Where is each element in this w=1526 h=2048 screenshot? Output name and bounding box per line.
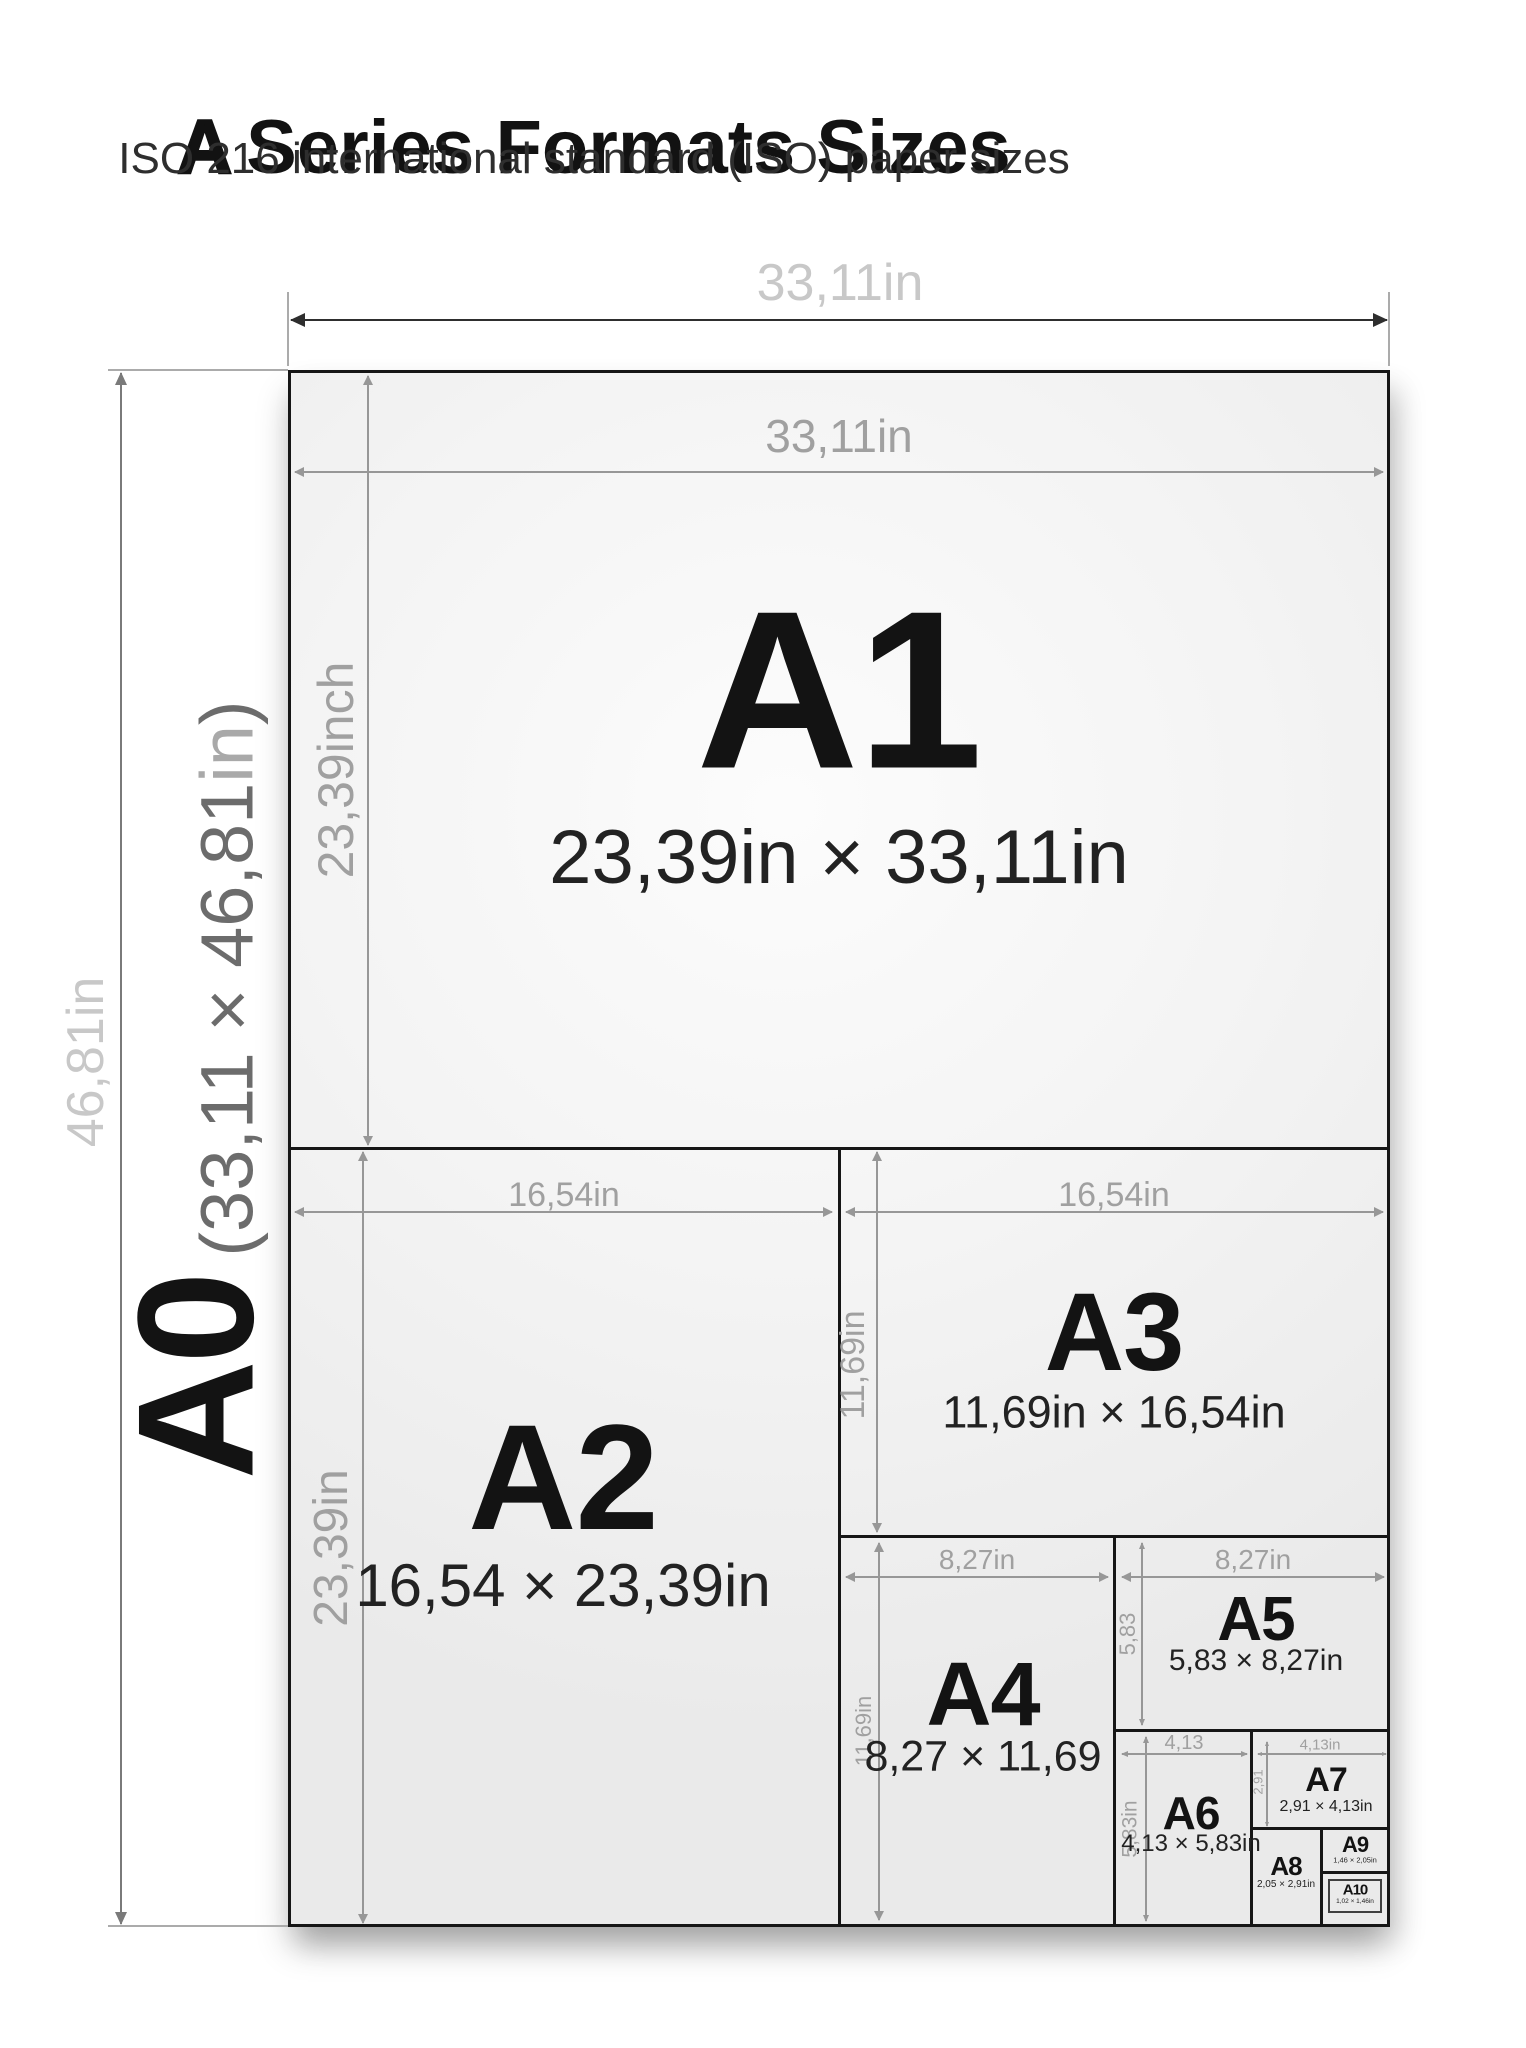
extension-line-left-bottom — [108, 1925, 288, 1927]
a5-height-label: 5,83 — [1117, 1613, 1139, 1656]
a2-size: 16,54 × 23,39in — [355, 1556, 770, 1616]
a0-title: A0 — [114, 1275, 279, 1480]
extension-line-top-left — [287, 292, 289, 366]
a1-width-dim-arrow — [295, 471, 1383, 473]
page-subtitle: ISO 216 international standard (ISO) pap… — [118, 137, 1069, 181]
outer-width-dim-arrow — [291, 319, 1387, 321]
a-series-diagram: ASeries Formats Sizes ISO 216 internatio… — [0, 0, 1526, 2048]
divider-a8-a9 — [1320, 1827, 1323, 1927]
a6-width-label: 4,13 — [1165, 1733, 1204, 1753]
a5-title: A5 — [1217, 1589, 1294, 1651]
a0-label: A0 (33,11 × 46,81in) — [114, 700, 279, 1479]
a2-width-label: 16,54in — [508, 1178, 620, 1212]
a1-title: A1 — [696, 578, 982, 803]
divider-a9-a10 — [1320, 1871, 1390, 1874]
a3-title: A3 — [1045, 1278, 1184, 1388]
a5-width-label: 8,27in — [1215, 1546, 1291, 1574]
a10-title: A10 — [1343, 1883, 1368, 1898]
a4-title: A4 — [926, 1650, 1039, 1740]
a1-height-dim-arrow — [367, 376, 369, 1145]
a10-size: 1,02 × 1,46in — [1336, 1899, 1374, 1906]
a4-height-dim-arrow — [878, 1543, 880, 1920]
a7-height-label: 2,91 — [1252, 1769, 1265, 1794]
a9-title: A9 — [1342, 1834, 1368, 1856]
a0-size: (33,11 × 46,81in) — [191, 700, 265, 1256]
a2-title: A2 — [468, 1402, 658, 1552]
a2-height-dim-arrow — [362, 1152, 364, 1923]
a6-height-dim-arrow — [1145, 1737, 1147, 1921]
a7-title: A7 — [1305, 1763, 1346, 1797]
extension-line-top-right — [1388, 292, 1390, 366]
a1-width-label: 33,11in — [765, 413, 913, 459]
a7-size: 2,91 × 4,13in — [1280, 1799, 1373, 1815]
a9-size: 1,46 × 2,05in — [1333, 1856, 1377, 1864]
a2-height-label: 23,39in — [308, 1469, 356, 1626]
a3-height-label: 11,69in — [836, 1310, 870, 1419]
a1-height-label: 23,39inch — [311, 662, 361, 879]
a7-width-label: 4,13in — [1300, 1738, 1341, 1753]
a6-size: 4,13 × 5,83in — [1121, 1832, 1260, 1856]
a8-size: 2,05 × 2,91in — [1257, 1880, 1315, 1890]
a5-width-dim-arrow — [1122, 1576, 1384, 1578]
a3-width-label: 16,54in — [1058, 1178, 1170, 1212]
extension-line-left-top — [108, 369, 288, 371]
outer-width-label: 33,11in — [757, 257, 924, 309]
a3-height-dim-arrow — [876, 1152, 878, 1532]
a4-size: 8,27 × 11,69 — [864, 1736, 1101, 1779]
a5-size: 5,83 × 8,27in — [1169, 1646, 1343, 1676]
a8-title: A8 — [1270, 1853, 1301, 1879]
a4-width-dim-arrow — [846, 1576, 1108, 1578]
outer-height-label: 46,81in — [60, 977, 112, 1148]
a5-height-dim-arrow — [1141, 1543, 1143, 1725]
a3-size: 11,69in × 16,54in — [942, 1390, 1285, 1435]
a1-size: 23,39in × 33,11in — [549, 820, 1129, 896]
a7-height-dim-arrow — [1266, 1742, 1268, 1826]
a4-width-label: 8,27in — [939, 1546, 1015, 1574]
